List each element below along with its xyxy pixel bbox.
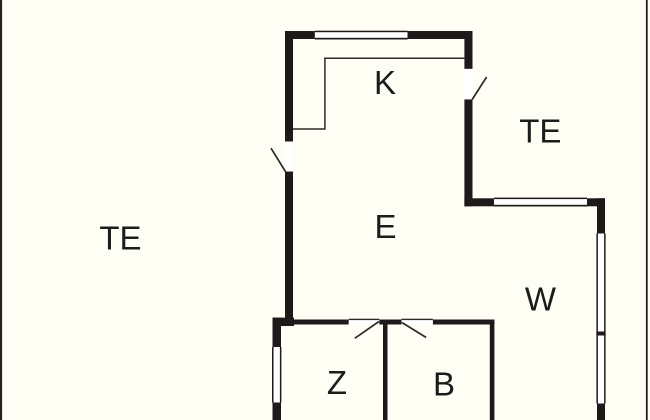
svg-text:B: B	[433, 365, 455, 402]
svg-text:TE: TE	[519, 113, 561, 150]
svg-text:TE: TE	[99, 220, 141, 257]
svg-text:K: K	[374, 64, 396, 101]
svg-text:W: W	[525, 281, 557, 318]
svg-text:Z: Z	[327, 364, 347, 401]
svg-text:E: E	[374, 208, 396, 245]
